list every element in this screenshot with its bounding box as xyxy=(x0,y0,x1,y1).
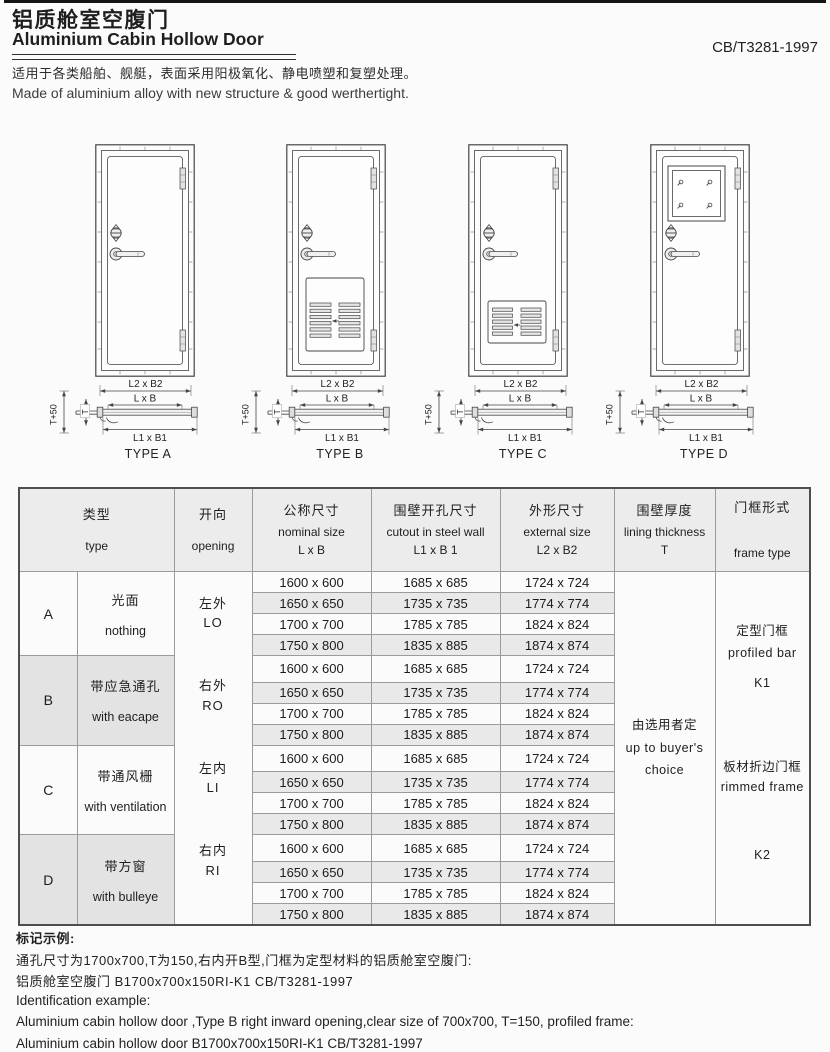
svg-text:L2 x B2: L2 x B2 xyxy=(504,379,538,390)
col-header-external: 外形尺寸 external size L2 x B2 xyxy=(500,488,614,572)
door-diagram-type-a xyxy=(95,144,195,377)
nominal-size-cell: 1600 x 600 xyxy=(252,572,371,593)
cutout-size-cell: 1835 x 885 xyxy=(371,904,500,926)
external-size-cell: 1874 x 874 xyxy=(500,635,614,656)
cutout-size-cell: 1735 x 735 xyxy=(371,593,500,614)
door-frame xyxy=(469,145,567,376)
external-size-cell: 1774 x 774 xyxy=(500,772,614,793)
svg-text:T: T xyxy=(636,409,646,414)
cutout-size-cell: 1835 x 885 xyxy=(371,635,500,656)
dimension-diagram-type-d: L2 x B2L x BL1 x B1T+50TTYPE D xyxy=(606,376,776,464)
col-header-frame: 门框形式 frame type xyxy=(715,488,810,572)
svg-text:L1 x B1: L1 x B1 xyxy=(508,433,542,444)
svg-text:TYPE D: TYPE D xyxy=(680,447,728,461)
external-size-cell: 1724 x 724 xyxy=(500,835,614,862)
door-frame xyxy=(287,145,385,376)
svg-text:L1 x B1: L1 x B1 xyxy=(689,433,723,444)
mark-example-title-zh: 标记示例: xyxy=(16,928,75,947)
cutout-size-cell: 1785 x 785 xyxy=(371,793,500,814)
spec-table-header: 类型 type 开向 opening 公称尺寸 nominal size L x… xyxy=(19,488,810,572)
frame-type-cell: 定型门框profiled barK1板材折边门框rimmed frameK2 xyxy=(715,572,810,926)
cutout-size-cell: 1785 x 785 xyxy=(371,614,500,635)
type-letter-cell: D xyxy=(19,835,77,925)
cutout-size-cell: 1835 x 885 xyxy=(371,724,500,745)
nominal-size-cell: 1650 x 650 xyxy=(252,862,371,883)
mark-example-zh-line2: 铝质舱室空腹门 B1700x700x150RI-K1 CB/T3281-1997 xyxy=(16,971,353,990)
dimension-diagram-type-c: L2 x B2L x BL1 x B1T+50TTYPE C xyxy=(425,376,595,464)
door-svg-c xyxy=(468,144,568,377)
svg-text:L x B: L x B xyxy=(509,394,532,405)
nominal-size-cell: 1700 x 700 xyxy=(252,614,371,635)
external-size-cell: 1724 x 724 xyxy=(500,656,614,683)
opening-option: 左外LO xyxy=(175,594,252,633)
door-svg-b xyxy=(286,144,386,377)
dimension-diagram-type-a: L2 x B2L x BL1 x B1T+50TTYPE A xyxy=(50,376,220,464)
external-size-cell: 1824 x 824 xyxy=(500,703,614,724)
svg-text:T: T xyxy=(80,409,90,414)
svg-text:T+50: T+50 xyxy=(242,404,251,425)
door-section-drawing xyxy=(451,407,572,423)
cutout-size-cell: 1685 x 685 xyxy=(371,835,500,862)
mark-example-en-line1: Aluminium cabin hollow door ,Type B righ… xyxy=(16,1014,634,1029)
nominal-size-cell: 1600 x 600 xyxy=(252,835,371,862)
nominal-size-cell: 1600 x 600 xyxy=(252,745,371,772)
door-section-drawing xyxy=(632,407,753,423)
svg-text:T+50: T+50 xyxy=(425,404,434,425)
svg-text:L x B: L x B xyxy=(326,394,349,405)
nominal-size-cell: 1750 x 800 xyxy=(252,904,371,926)
page-title-en: Aluminium Cabin Hollow Door xyxy=(12,29,264,50)
cutout-size-cell: 1735 x 735 xyxy=(371,682,500,703)
nominal-size-cell: 1700 x 700 xyxy=(252,703,371,724)
spec-table: 类型 type 开向 opening 公称尺寸 nominal size L x… xyxy=(18,487,811,926)
cutout-size-cell: 1685 x 685 xyxy=(371,745,500,772)
cutout-size-cell: 1735 x 735 xyxy=(371,862,500,883)
type-desc-cell: 带方窗with bulleye xyxy=(77,835,174,925)
lining-thickness-cell: 由选用者定up to buyer'schoice xyxy=(614,572,715,926)
svg-text:L2 x B2: L2 x B2 xyxy=(321,379,355,390)
type-desc-cell: 光面nothing xyxy=(77,572,174,656)
spec-table-body: A光面nothing左外LO右外RO左内LI右内RI1600 x 6001685… xyxy=(19,572,810,926)
external-size-cell: 1724 x 724 xyxy=(500,572,614,593)
door-diagram-type-b xyxy=(286,144,386,377)
col-header-lining: 围壁厚度 lining thickness T xyxy=(614,488,715,572)
type-letter-cell: A xyxy=(19,572,77,656)
catalog-page: 铝质舱室空腹门 Aluminium Cabin Hollow Door CB/T… xyxy=(0,0,830,1052)
external-size-cell: 1774 x 774 xyxy=(500,862,614,883)
col-header-cutout: 围壁开孔尺寸 cutout in steel wall L1 x B 1 xyxy=(371,488,500,572)
svg-text:L1 x B1: L1 x B1 xyxy=(133,433,167,444)
type-letter-cell: B xyxy=(19,656,77,746)
top-scan-line xyxy=(4,0,826,3)
mark-example-zh-line1: 通孔尺寸为1700x700,T为150,右内开B型,门框为定型材料的铝质舱室空腹… xyxy=(16,950,472,969)
type-desc-cell: 带通风栅with ventilation xyxy=(77,745,174,835)
svg-text:L x B: L x B xyxy=(690,394,713,405)
svg-text:L1 x B1: L1 x B1 xyxy=(325,433,359,444)
door-diagram-type-c xyxy=(468,144,568,377)
external-size-cell: 1724 x 724 xyxy=(500,745,614,772)
svg-text:TYPE C: TYPE C xyxy=(499,447,547,461)
type-desc-cell: 带应急通孔with eacape xyxy=(77,656,174,746)
svg-text:T+50: T+50 xyxy=(606,404,615,425)
svg-text:L2 x B2: L2 x B2 xyxy=(129,379,163,390)
external-size-cell: 1874 x 874 xyxy=(500,724,614,745)
nominal-size-cell: 1650 x 650 xyxy=(252,682,371,703)
svg-text:T: T xyxy=(272,409,282,414)
external-size-cell: 1774 x 774 xyxy=(500,682,614,703)
opening-cell: 左外LO右外RO左内LI右内RI xyxy=(174,572,252,926)
opening-option: 左内LI xyxy=(175,759,252,798)
title-underline xyxy=(12,54,296,60)
svg-text:T+50: T+50 xyxy=(50,404,59,425)
cutout-size-cell: 1685 x 685 xyxy=(371,656,500,683)
opening-option: 右外RO xyxy=(175,676,252,715)
external-size-cell: 1874 x 874 xyxy=(500,904,614,926)
dimension-svg: L2 x B2L x BL1 x B1T+50TTYPE B xyxy=(242,376,412,464)
col-header-nominal: 公称尺寸 nominal size L x B xyxy=(252,488,371,572)
cutout-size-cell: 1835 x 885 xyxy=(371,814,500,835)
type-letter-cell: C xyxy=(19,745,77,835)
door-svg-d xyxy=(650,144,750,377)
svg-text:T: T xyxy=(455,409,465,414)
dimension-diagram-type-b: L2 x B2L x BL1 x B1T+50TTYPE B xyxy=(242,376,412,464)
door-diagram-type-d xyxy=(650,144,750,377)
mark-example-en-line2: Aluminium cabin hollow door B1700x700x15… xyxy=(16,1036,423,1051)
description-en: Made of aluminium alloy with new structu… xyxy=(12,85,409,101)
external-size-cell: 1824 x 824 xyxy=(500,793,614,814)
door-frame xyxy=(96,145,194,376)
door-svg-a xyxy=(95,144,195,377)
standard-code: CB/T3281-1997 xyxy=(712,39,818,56)
nominal-size-cell: 1650 x 650 xyxy=(252,772,371,793)
nominal-size-cell: 1750 x 800 xyxy=(252,814,371,835)
cutout-size-cell: 1735 x 735 xyxy=(371,772,500,793)
external-size-cell: 1874 x 874 xyxy=(500,814,614,835)
cutout-size-cell: 1785 x 785 xyxy=(371,883,500,904)
dimension-svg: L2 x B2L x BL1 x B1T+50TTYPE D xyxy=(606,376,776,464)
svg-text:TYPE A: TYPE A xyxy=(125,447,172,461)
square-window xyxy=(668,166,725,221)
dimension-svg: L2 x B2L x BL1 x B1T+50TTYPE C xyxy=(425,376,595,464)
spec-row: A光面nothing左外LO右外RO左内LI右内RI1600 x 6001685… xyxy=(19,572,810,593)
nominal-size-cell: 1700 x 700 xyxy=(252,793,371,814)
svg-text:TYPE B: TYPE B xyxy=(316,447,363,461)
svg-text:L x B: L x B xyxy=(134,394,157,405)
external-size-cell: 1824 x 824 xyxy=(500,614,614,635)
mark-example-title-en: Identification example: xyxy=(16,993,150,1008)
dimension-svg: L2 x B2L x BL1 x B1T+50TTYPE A xyxy=(50,376,220,464)
svg-text:L2 x B2: L2 x B2 xyxy=(685,379,719,390)
nominal-size-cell: 1650 x 650 xyxy=(252,593,371,614)
door-section-drawing xyxy=(268,407,389,423)
col-header-type: 类型 type xyxy=(19,488,174,572)
nominal-size-cell: 1700 x 700 xyxy=(252,883,371,904)
cutout-size-cell: 1785 x 785 xyxy=(371,703,500,724)
nominal-size-cell: 1750 x 800 xyxy=(252,724,371,745)
description-zh: 适用于各类船舶、舰艇，表面采用阳极氧化、静电喷塑和复塑处理。 xyxy=(12,63,417,82)
col-header-opening: 开向 opening xyxy=(174,488,252,572)
external-size-cell: 1824 x 824 xyxy=(500,883,614,904)
door-section-drawing xyxy=(76,407,197,423)
opening-option: 右内RI xyxy=(175,841,252,880)
cutout-size-cell: 1685 x 685 xyxy=(371,572,500,593)
external-size-cell: 1774 x 774 xyxy=(500,593,614,614)
nominal-size-cell: 1600 x 600 xyxy=(252,656,371,683)
nominal-size-cell: 1750 x 800 xyxy=(252,635,371,656)
